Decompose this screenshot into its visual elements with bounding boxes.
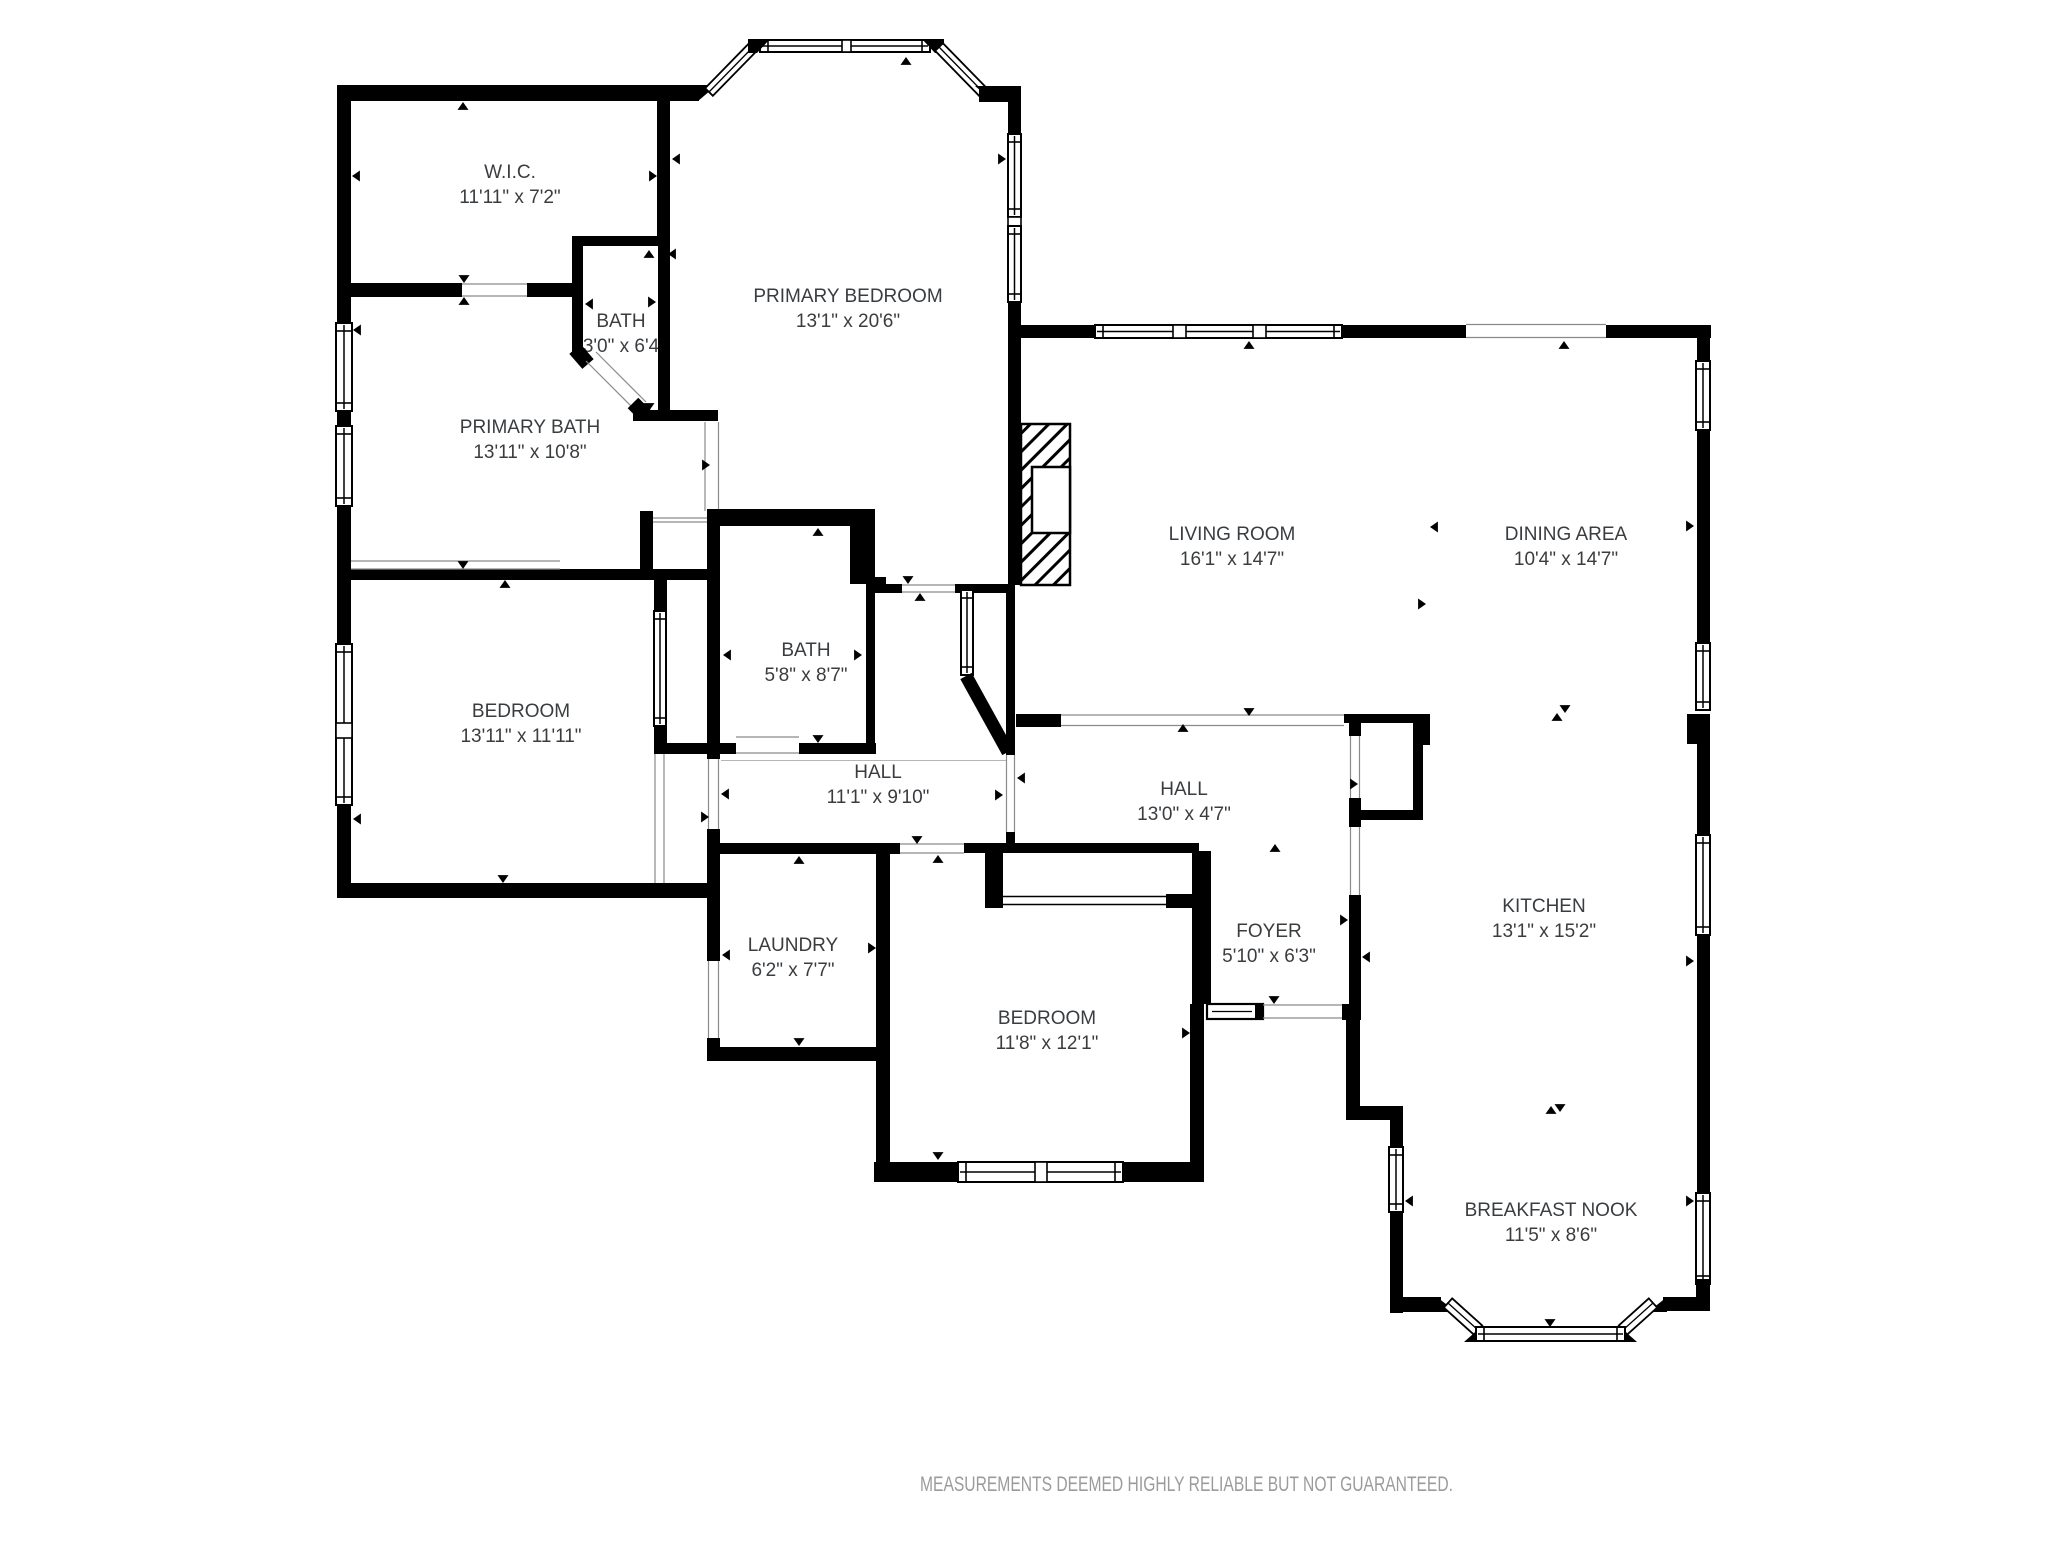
svg-text:11'1" x 9'10": 11'1" x 9'10": [827, 787, 930, 808]
svg-text:BEDROOM: BEDROOM: [998, 1008, 1096, 1029]
svg-text:KITCHEN: KITCHEN: [1502, 896, 1585, 917]
svg-text:DINING AREA: DINING AREA: [1505, 524, 1628, 545]
svg-text:13'11" x 10'8": 13'11" x 10'8": [473, 442, 586, 463]
svg-text:PRIMARY BEDROOM: PRIMARY BEDROOM: [753, 286, 942, 307]
svg-text:3'0" x 6'4: 3'0" x 6'4: [583, 336, 660, 357]
svg-text:13'0" x 4'7": 13'0" x 4'7": [1137, 804, 1231, 825]
svg-text:BATH: BATH: [781, 640, 830, 661]
svg-text:HALL: HALL: [854, 762, 902, 783]
svg-text:11'8" x 12'1": 11'8" x 12'1": [996, 1033, 1099, 1054]
svg-text:W.I.C.: W.I.C.: [484, 162, 536, 183]
svg-text:11'11" x 7'2": 11'11" x 7'2": [459, 187, 560, 208]
svg-text:BATH: BATH: [596, 311, 645, 332]
svg-text:5'10" x 6'3": 5'10" x 6'3": [1222, 946, 1316, 967]
svg-text:13'1" x 15'2": 13'1" x 15'2": [1492, 921, 1596, 942]
svg-text:BEDROOM: BEDROOM: [472, 701, 570, 722]
svg-text:10'4" x 14'7": 10'4" x 14'7": [1514, 549, 1618, 570]
svg-text:11'5" x 8'6": 11'5" x 8'6": [1505, 1225, 1597, 1246]
svg-text:5'8" x 8'7": 5'8" x 8'7": [764, 665, 847, 686]
svg-text:LIVING ROOM: LIVING ROOM: [1169, 524, 1296, 545]
svg-text:LAUNDRY: LAUNDRY: [748, 935, 839, 956]
svg-text:PRIMARY BATH: PRIMARY BATH: [460, 417, 600, 438]
svg-text:FOYER: FOYER: [1236, 921, 1301, 942]
svg-text:HALL: HALL: [1160, 779, 1208, 800]
svg-text:13'1" x 20'6": 13'1" x 20'6": [796, 311, 900, 332]
svg-text:6'2" x 7'7": 6'2" x 7'7": [751, 960, 834, 981]
svg-text:MEASUREMENTS DEEMED HIGHLY REL: MEASUREMENTS DEEMED HIGHLY RELIABLE BUT …: [920, 1472, 1453, 1496]
svg-text:BREAKFAST NOOK: BREAKFAST NOOK: [1465, 1200, 1638, 1221]
svg-text:16'1" x 14'7": 16'1" x 14'7": [1180, 549, 1284, 570]
svg-text:13'11" x 11'11": 13'11" x 11'11": [460, 726, 581, 747]
